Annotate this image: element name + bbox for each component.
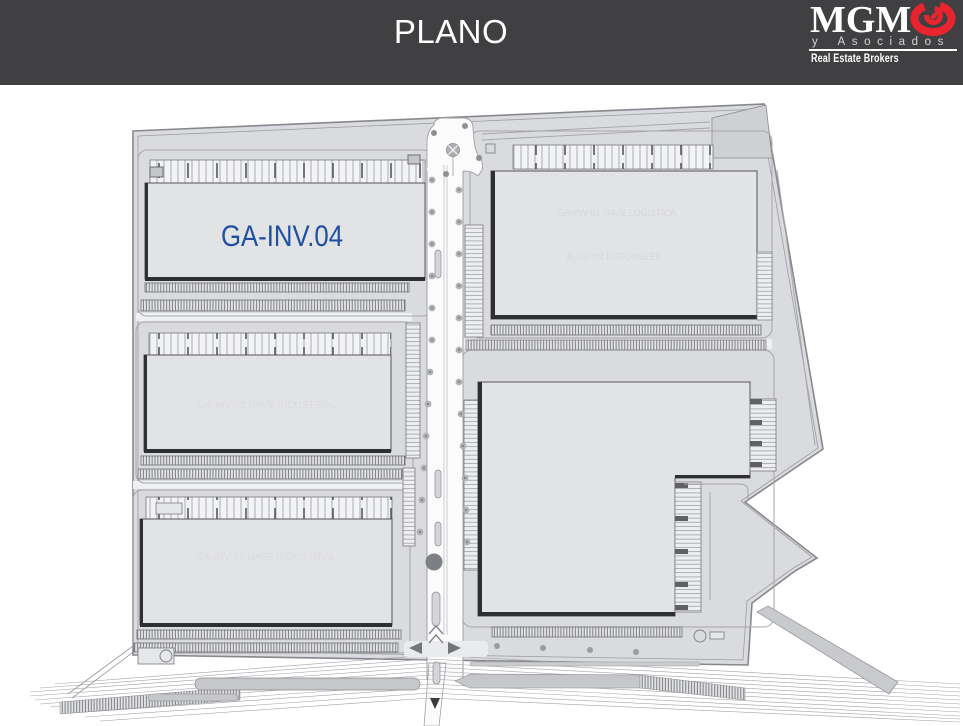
svg-text:GA-INV-01 NAVE LOGISTICA: GA-INV-01 NAVE LOGISTICA <box>558 208 676 219</box>
svg-text:GA-INV.04: GA-INV.04 <box>221 220 343 253</box>
svg-text:36,000 m2 DISPONIBLES: 36,000 m2 DISPONIBLES <box>566 252 661 263</box>
svg-text:GA-INV-02 NAVE INDUSTRIAL: GA-INV-02 NAVE INDUSTRIAL <box>197 400 337 411</box>
svg-text:GA-INV-03 NAVE INDUSTRIAL: GA-INV-03 NAVE INDUSTRIAL <box>196 552 336 563</box>
